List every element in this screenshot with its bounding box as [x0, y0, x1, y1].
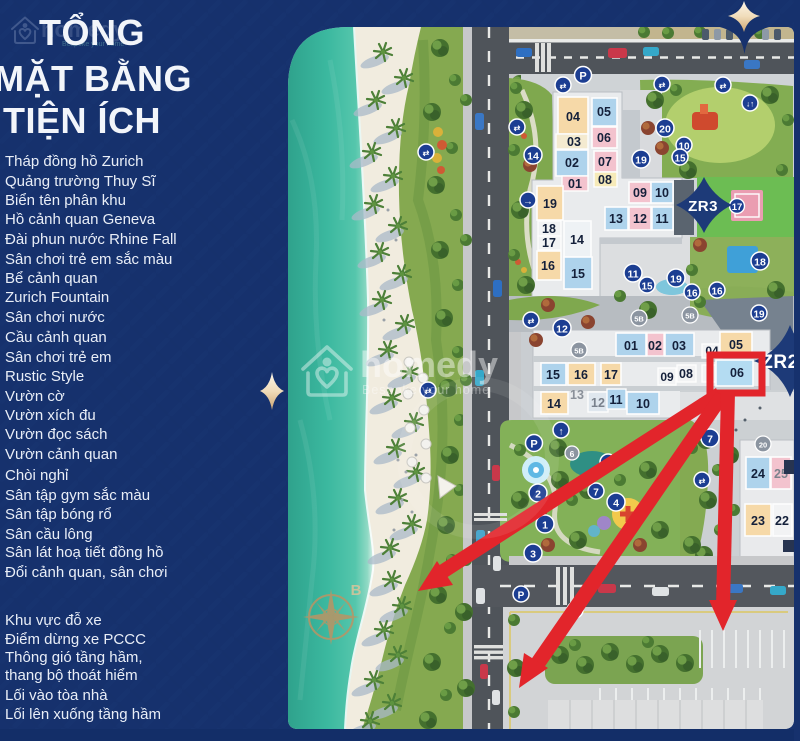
svg-text:06: 06: [597, 131, 611, 145]
svg-text:Chòi nghỉ: Chòi nghỉ: [5, 467, 69, 484]
svg-text:↓↑: ↓↑: [746, 100, 754, 109]
svg-text:Lối vào tòa nhà: Lối vào tòa nhà: [5, 687, 108, 704]
svg-text:18: 18: [754, 257, 766, 269]
svg-text:10: 10: [636, 397, 650, 411]
svg-text:7: 7: [593, 488, 599, 499]
svg-text:07: 07: [598, 155, 612, 169]
svg-text:6: 6: [570, 449, 575, 459]
svg-text:10: 10: [655, 186, 669, 200]
svg-text:⇄: ⇄: [699, 477, 706, 486]
svg-text:19: 19: [635, 155, 647, 167]
svg-text:19: 19: [543, 197, 557, 211]
svg-text:Vườn cảnh quan: Vườn cảnh quan: [5, 446, 117, 463]
svg-text:Hồ cảnh quan Geneva: Hồ cảnh quan Geneva: [5, 211, 156, 228]
svg-text:19: 19: [753, 310, 765, 321]
svg-text:09: 09: [660, 370, 674, 384]
svg-text:01: 01: [568, 177, 582, 191]
svg-text:05: 05: [597, 105, 611, 119]
svg-text:ZR2: ZR2: [761, 352, 798, 373]
svg-text:12: 12: [591, 396, 605, 410]
svg-text:04: 04: [566, 110, 580, 124]
svg-text:Sân cầu lông: Sân cầu lông: [5, 526, 93, 543]
svg-text:Rustic Style: Rustic Style: [5, 368, 84, 385]
svg-text:03: 03: [567, 135, 581, 149]
svg-text:→: →: [523, 197, 533, 208]
svg-text:16: 16: [711, 287, 723, 298]
svg-text:Sân lát hoạ tiết đồng hồ: Sân lát hoạ tiết đồng hồ: [5, 544, 163, 561]
svg-text:Khu vực đỗ xe: Khu vực đỗ xe: [5, 612, 102, 629]
svg-text:02: 02: [565, 156, 579, 170]
svg-text:⇄: ⇄: [560, 82, 567, 91]
svg-text:17: 17: [542, 236, 556, 250]
svg-text:08: 08: [598, 173, 612, 187]
svg-text:5B: 5B: [634, 315, 644, 324]
svg-text:15: 15: [546, 368, 560, 382]
svg-text:Lối lên xuống tầng hầm: Lối lên xuống tầng hầm: [5, 706, 161, 723]
svg-text:Zurich Fountain: Zurich Fountain: [5, 289, 109, 306]
svg-text:5B: 5B: [574, 347, 584, 356]
svg-text:⇄: ⇄: [528, 317, 535, 326]
svg-text:Vườn đọc sách: Vườn đọc sách: [5, 426, 107, 443]
svg-text:P: P: [518, 591, 525, 602]
svg-text:Sân chơi nước: Sân chơi nước: [5, 309, 105, 326]
svg-text:20: 20: [659, 124, 671, 136]
svg-text:11: 11: [627, 269, 638, 281]
svg-text:Biển tên phân khu: Biển tên phân khu: [5, 192, 126, 209]
svg-text:thang bộ thoát hiểm: thang bộ thoát hiểm: [5, 667, 138, 684]
svg-text:Sân tập bóng rổ: Sân tập bóng rổ: [5, 506, 112, 523]
svg-text:14: 14: [547, 397, 561, 411]
svg-text:3: 3: [530, 549, 536, 561]
svg-text:⇄: ⇄: [423, 149, 430, 158]
svg-text:↑: ↑: [559, 427, 564, 438]
svg-text:14: 14: [570, 233, 584, 247]
svg-text:Tháp đồng hồ Zurich: Tháp đồng hồ Zurich: [5, 153, 143, 170]
svg-text:Đài phun nước Rhine Fall: Đài phun nước Rhine Fall: [5, 231, 177, 248]
svg-text:⇄: ⇄: [514, 124, 521, 133]
svg-text:Điểm dừng xe PCCC: Điểm dừng xe PCCC: [5, 631, 146, 648]
svg-text:Sân tập gym sắc màu: Sân tập gym sắc màu: [5, 487, 150, 504]
svg-text:18: 18: [542, 222, 556, 236]
svg-text:1: 1: [542, 520, 548, 532]
svg-text:06: 06: [730, 366, 744, 380]
svg-text:7: 7: [707, 434, 713, 446]
svg-text:09: 09: [633, 186, 647, 200]
svg-text:Sân chơi trẻ em: Sân chơi trẻ em: [5, 349, 112, 366]
svg-text:4: 4: [613, 498, 619, 510]
svg-text:12: 12: [556, 324, 568, 336]
svg-text:11: 11: [655, 212, 668, 226]
svg-text:5B: 5B: [685, 312, 695, 321]
svg-text:ZR3: ZR3: [688, 198, 718, 215]
svg-text:⇄: ⇄: [659, 81, 666, 90]
svg-text:11: 11: [609, 393, 622, 407]
svg-text:15: 15: [571, 267, 585, 281]
svg-text:B: B: [351, 582, 362, 599]
svg-text:23: 23: [751, 514, 765, 528]
svg-text:16: 16: [686, 289, 698, 300]
svg-text:TIỆN ÍCH: TIỆN ÍCH: [3, 99, 161, 141]
svg-text:16: 16: [574, 368, 588, 382]
svg-text:Vườn cờ: Vườn cờ: [5, 388, 65, 405]
svg-text:Bể cảnh quan: Bể cảnh quan: [5, 270, 98, 287]
svg-text:homedy: homedy: [360, 344, 498, 385]
svg-text:13: 13: [570, 388, 584, 402]
svg-text:12: 12: [633, 212, 647, 226]
svg-text:Đổi cảnh quan, sân chơi: Đổi cảnh quan, sân chơi: [5, 564, 167, 581]
svg-text:TỔNG: TỔNG: [39, 10, 145, 53]
svg-text:24: 24: [751, 467, 765, 481]
svg-text:MẶT BẰNG: MẶT BẰNG: [0, 58, 192, 99]
svg-text:05: 05: [729, 338, 743, 352]
svg-text:03: 03: [672, 339, 686, 353]
svg-text:Sân chơi trẻ em sắc màu: Sân chơi trẻ em sắc màu: [5, 251, 172, 268]
svg-text:⇄: ⇄: [720, 82, 727, 91]
svg-text:20: 20: [759, 441, 767, 450]
svg-text:Quảng trường Thuy Sĩ: Quảng trường Thuy Sĩ: [5, 173, 156, 190]
svg-text:17: 17: [732, 202, 743, 213]
svg-text:P: P: [530, 439, 537, 451]
svg-text:Bespoke your home: Bespoke your home: [362, 383, 490, 397]
svg-text:01: 01: [624, 339, 638, 353]
svg-text:14: 14: [527, 151, 539, 163]
svg-text:15: 15: [641, 282, 653, 293]
svg-text:Vườn xích đu: Vườn xích đu: [5, 407, 96, 424]
svg-text:22: 22: [775, 514, 789, 528]
svg-text:19: 19: [670, 274, 682, 286]
svg-text:Thông gió tầng hầm,: Thông gió tầng hầm,: [5, 649, 143, 666]
svg-text:P: P: [579, 71, 586, 83]
svg-text:Cầu cảnh quan: Cầu cảnh quan: [5, 329, 107, 346]
svg-text:13: 13: [609, 212, 623, 226]
svg-text:16: 16: [541, 259, 555, 273]
svg-text:02: 02: [648, 339, 662, 353]
svg-text:17: 17: [604, 368, 618, 382]
svg-text:08: 08: [679, 367, 693, 381]
svg-text:15: 15: [674, 154, 686, 165]
